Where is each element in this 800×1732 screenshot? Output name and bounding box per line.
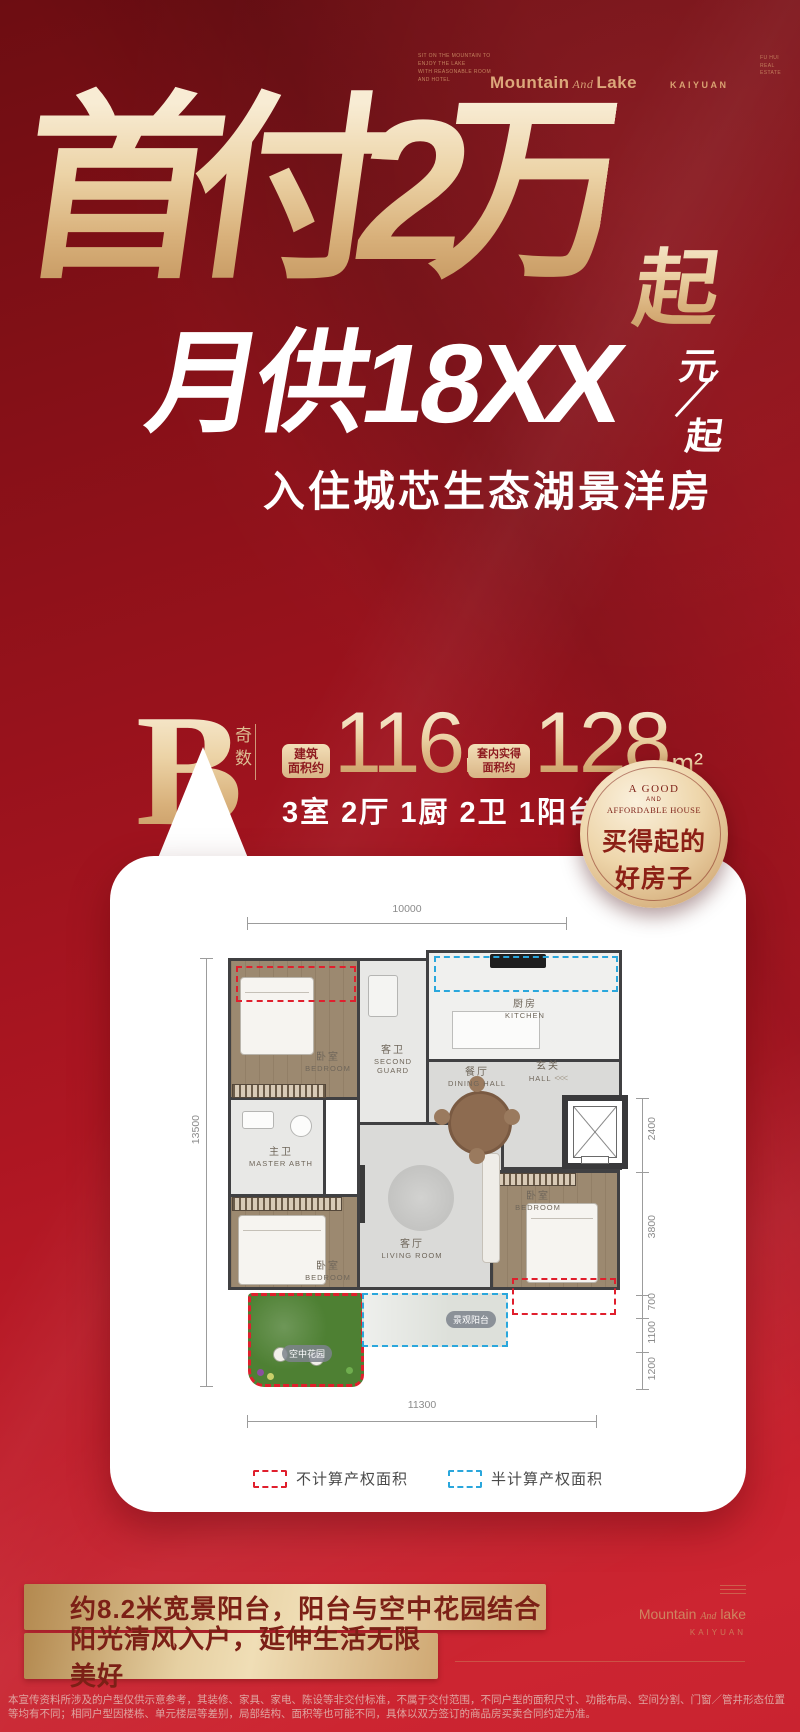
room-label-hall: 玄关 HALL <<<: [510, 1057, 586, 1083]
dim-line: [206, 958, 207, 1387]
legend-item-blue: 半计算产权面积: [448, 1468, 603, 1489]
developer-line: ESTATE: [760, 70, 781, 78]
room-label-zh: 卧室: [290, 1257, 366, 1272]
dim-line: [247, 1421, 597, 1422]
developer-line: FU HUI: [760, 55, 781, 63]
wardrobe-icon: [496, 1173, 576, 1186]
room-label-zh: 客卫: [358, 1041, 428, 1056]
disclaimer-text: 本宣传资料所涉及的户型仅供示意参考，其装修、家具、家电、陈设等非交付标准，不属于…: [8, 1694, 794, 1721]
room-label-zh: 客厅: [372, 1235, 452, 1250]
room-label-zh: 主卫: [238, 1143, 324, 1158]
elevator-x-icon: [573, 1106, 617, 1158]
tagline-line: SIT ON THE MOUNTAIN TO: [418, 52, 491, 60]
room-label-en: KITCHEN: [480, 1011, 570, 1020]
dim-right: 2400: [646, 1117, 658, 1140]
room-label-zh: 卧室: [498, 1187, 578, 1202]
room-label-en: SECOND GUARD: [369, 1057, 417, 1075]
footer-logo-line: [720, 1585, 746, 1586]
dim-tick: [636, 1389, 649, 1390]
footer-logo: Mountain And lake KAIYUAN: [600, 1582, 746, 1637]
dining-table-icon: [440, 1083, 514, 1157]
room-label-zh: 餐厅: [435, 1063, 519, 1078]
tagline-line: ENJOY THE LAKE: [418, 60, 491, 68]
hero-title: 首付2万: [7, 86, 620, 296]
footer-brand-sub: KAIYUAN: [600, 1628, 746, 1637]
room-label-dining: 餐厅 DINING HALL: [435, 1063, 519, 1088]
tv-icon: [360, 1165, 365, 1223]
room-label-master-bath: 主卫 MASTER ABTH: [238, 1143, 324, 1168]
footer-divider: [455, 1661, 745, 1662]
footer-logo-line: [720, 1593, 746, 1594]
red-dashed-legend-icon: [253, 1470, 287, 1488]
area-label-line: 建筑: [282, 747, 330, 761]
room-label-en: BEDROOM: [498, 1203, 578, 1212]
legend-item-red: 不计算产权面积: [253, 1468, 408, 1489]
badge-text-en: A GOOD: [580, 783, 728, 795]
dim-right: 1100: [646, 1321, 658, 1344]
sky-garden: [248, 1293, 364, 1387]
feature-bar-sunlight: 阳光清风入户，延伸生活无限美好: [24, 1633, 438, 1679]
dim-tick: [636, 1352, 649, 1353]
developer-logo: FU HUI REAL ESTATE: [760, 55, 781, 78]
area-label-line: 面积约: [282, 761, 330, 775]
hero-monthly-payment: 月供18XX: [140, 328, 627, 440]
footer-logo-line: [720, 1589, 746, 1590]
dim-tick: [247, 917, 248, 930]
room-label-bedroom-left: 卧室 BEDROOM: [290, 1257, 366, 1282]
area-label-built: 建筑 面积约: [282, 744, 330, 778]
room-label-second-guard: 客卫 SECOND GUARD: [358, 1041, 428, 1075]
badge-text-zh: 好房子: [580, 859, 728, 895]
tagline-line: WITH REASONABLE ROOM: [418, 68, 491, 76]
blue-dashed-legend-icon: [448, 1470, 482, 1488]
area-label-line: 面积约: [468, 761, 530, 775]
legend-label: 不计算产权面积: [296, 1468, 408, 1489]
dim-right: 700: [646, 1293, 658, 1311]
elevator-shaft: [562, 1095, 628, 1169]
shower-icon: [368, 975, 398, 1017]
dim-tick: [636, 1098, 649, 1099]
room-label-en: HALL <<<: [510, 1073, 586, 1083]
room-label-en: BEDROOM: [288, 1064, 368, 1073]
room-label-en: BEDROOM: [290, 1273, 366, 1282]
red-dashed-area: [236, 966, 356, 1002]
area-label-line: 套内实得: [468, 747, 530, 761]
room-label-bedroom-top: 卧室 BEDROOM: [288, 1048, 368, 1073]
elevator-door: [581, 1156, 609, 1164]
room-label-living: 客厅 LIVING ROOM: [372, 1235, 452, 1260]
dim-bottom: 11300: [247, 1399, 597, 1411]
dim-tick: [596, 1415, 597, 1428]
dim-right: 1200: [646, 1357, 658, 1380]
badge-text-zh: 买得起的: [580, 822, 728, 858]
room-label-kitchen: 厨房 KITCHEN: [480, 995, 570, 1020]
blue-dashed-area: [434, 956, 618, 992]
sky-garden-tag: 空中花园: [282, 1345, 332, 1362]
developer-line: REAL: [760, 63, 781, 71]
dim-right: 3800: [646, 1215, 658, 1238]
toilet-icon: [290, 1115, 312, 1137]
dim-top: 10000: [247, 903, 567, 915]
wardrobe-icon: [232, 1197, 342, 1211]
view-balcony-tag: 景观阳台: [446, 1311, 496, 1328]
unit-yuan: 元: [676, 336, 721, 390]
unit-qi: 起: [682, 406, 727, 460]
hero-title-suffix: 起: [627, 222, 728, 343]
gold-seal-badge: A GOOD AND AFFORDABLE HOUSE 买得起的 好房子: [580, 760, 728, 908]
room-label-en: DINING HALL: [435, 1079, 519, 1088]
room-label-zh: 厨房: [480, 995, 570, 1010]
dim-tick: [566, 917, 567, 930]
area-number: 116: [334, 700, 462, 786]
room-label-en: LIVING ROOM: [372, 1251, 452, 1260]
flower-icon: [267, 1373, 274, 1380]
room-label-en: MASTER ABTH: [238, 1159, 324, 1168]
red-dashed-area: [512, 1278, 616, 1315]
floor-plan: 10000 13500 11300 2400 3800 700 1100 120…: [190, 865, 660, 1445]
legend-label: 半计算产权面积: [491, 1468, 603, 1489]
flower-icon: [346, 1367, 353, 1374]
rug-icon: [388, 1165, 454, 1231]
footer-brand: Mountain And lake: [600, 1606, 746, 1622]
poster-page: SIT ON THE MOUNTAIN TO ENJOY THE LAKE WI…: [0, 0, 800, 1732]
plan-legend: 不计算产权面积 半计算产权面积: [110, 1468, 746, 1489]
badge-text-en: AFFORDABLE HOUSE: [580, 805, 728, 815]
dim-tick: [200, 1386, 213, 1387]
flower-icon: [257, 1369, 264, 1376]
badge-text-en: AND: [580, 797, 728, 803]
dim-tick: [200, 958, 213, 959]
kaiyuan-logo: KAIYUAN: [670, 80, 729, 90]
area-label-inner: 套内实得 面积约: [468, 744, 530, 778]
dim-left: 13500: [190, 1115, 202, 1144]
dim-tick: [247, 1415, 248, 1428]
dim-line: [247, 923, 567, 924]
room-label-zh: 玄关: [510, 1057, 586, 1072]
card-notch: [158, 747, 248, 858]
hall-arrows-icon: <<<: [554, 1073, 567, 1083]
room-label-bedroom-right: 卧室 BEDROOM: [498, 1187, 578, 1212]
hero-unit-block: 元 起: [654, 336, 744, 448]
wardrobe-icon: [232, 1084, 326, 1098]
hero-subtitle: 入住城芯生态湖景洋房: [176, 458, 800, 519]
bed-icon: [526, 1203, 598, 1283]
sink-icon: [242, 1111, 274, 1129]
dim-tick: [636, 1172, 649, 1173]
dim-line: [642, 1098, 643, 1390]
dim-tick: [636, 1318, 649, 1319]
unit-type-divider: [255, 724, 256, 780]
room-label-zh: 卧室: [288, 1048, 368, 1063]
